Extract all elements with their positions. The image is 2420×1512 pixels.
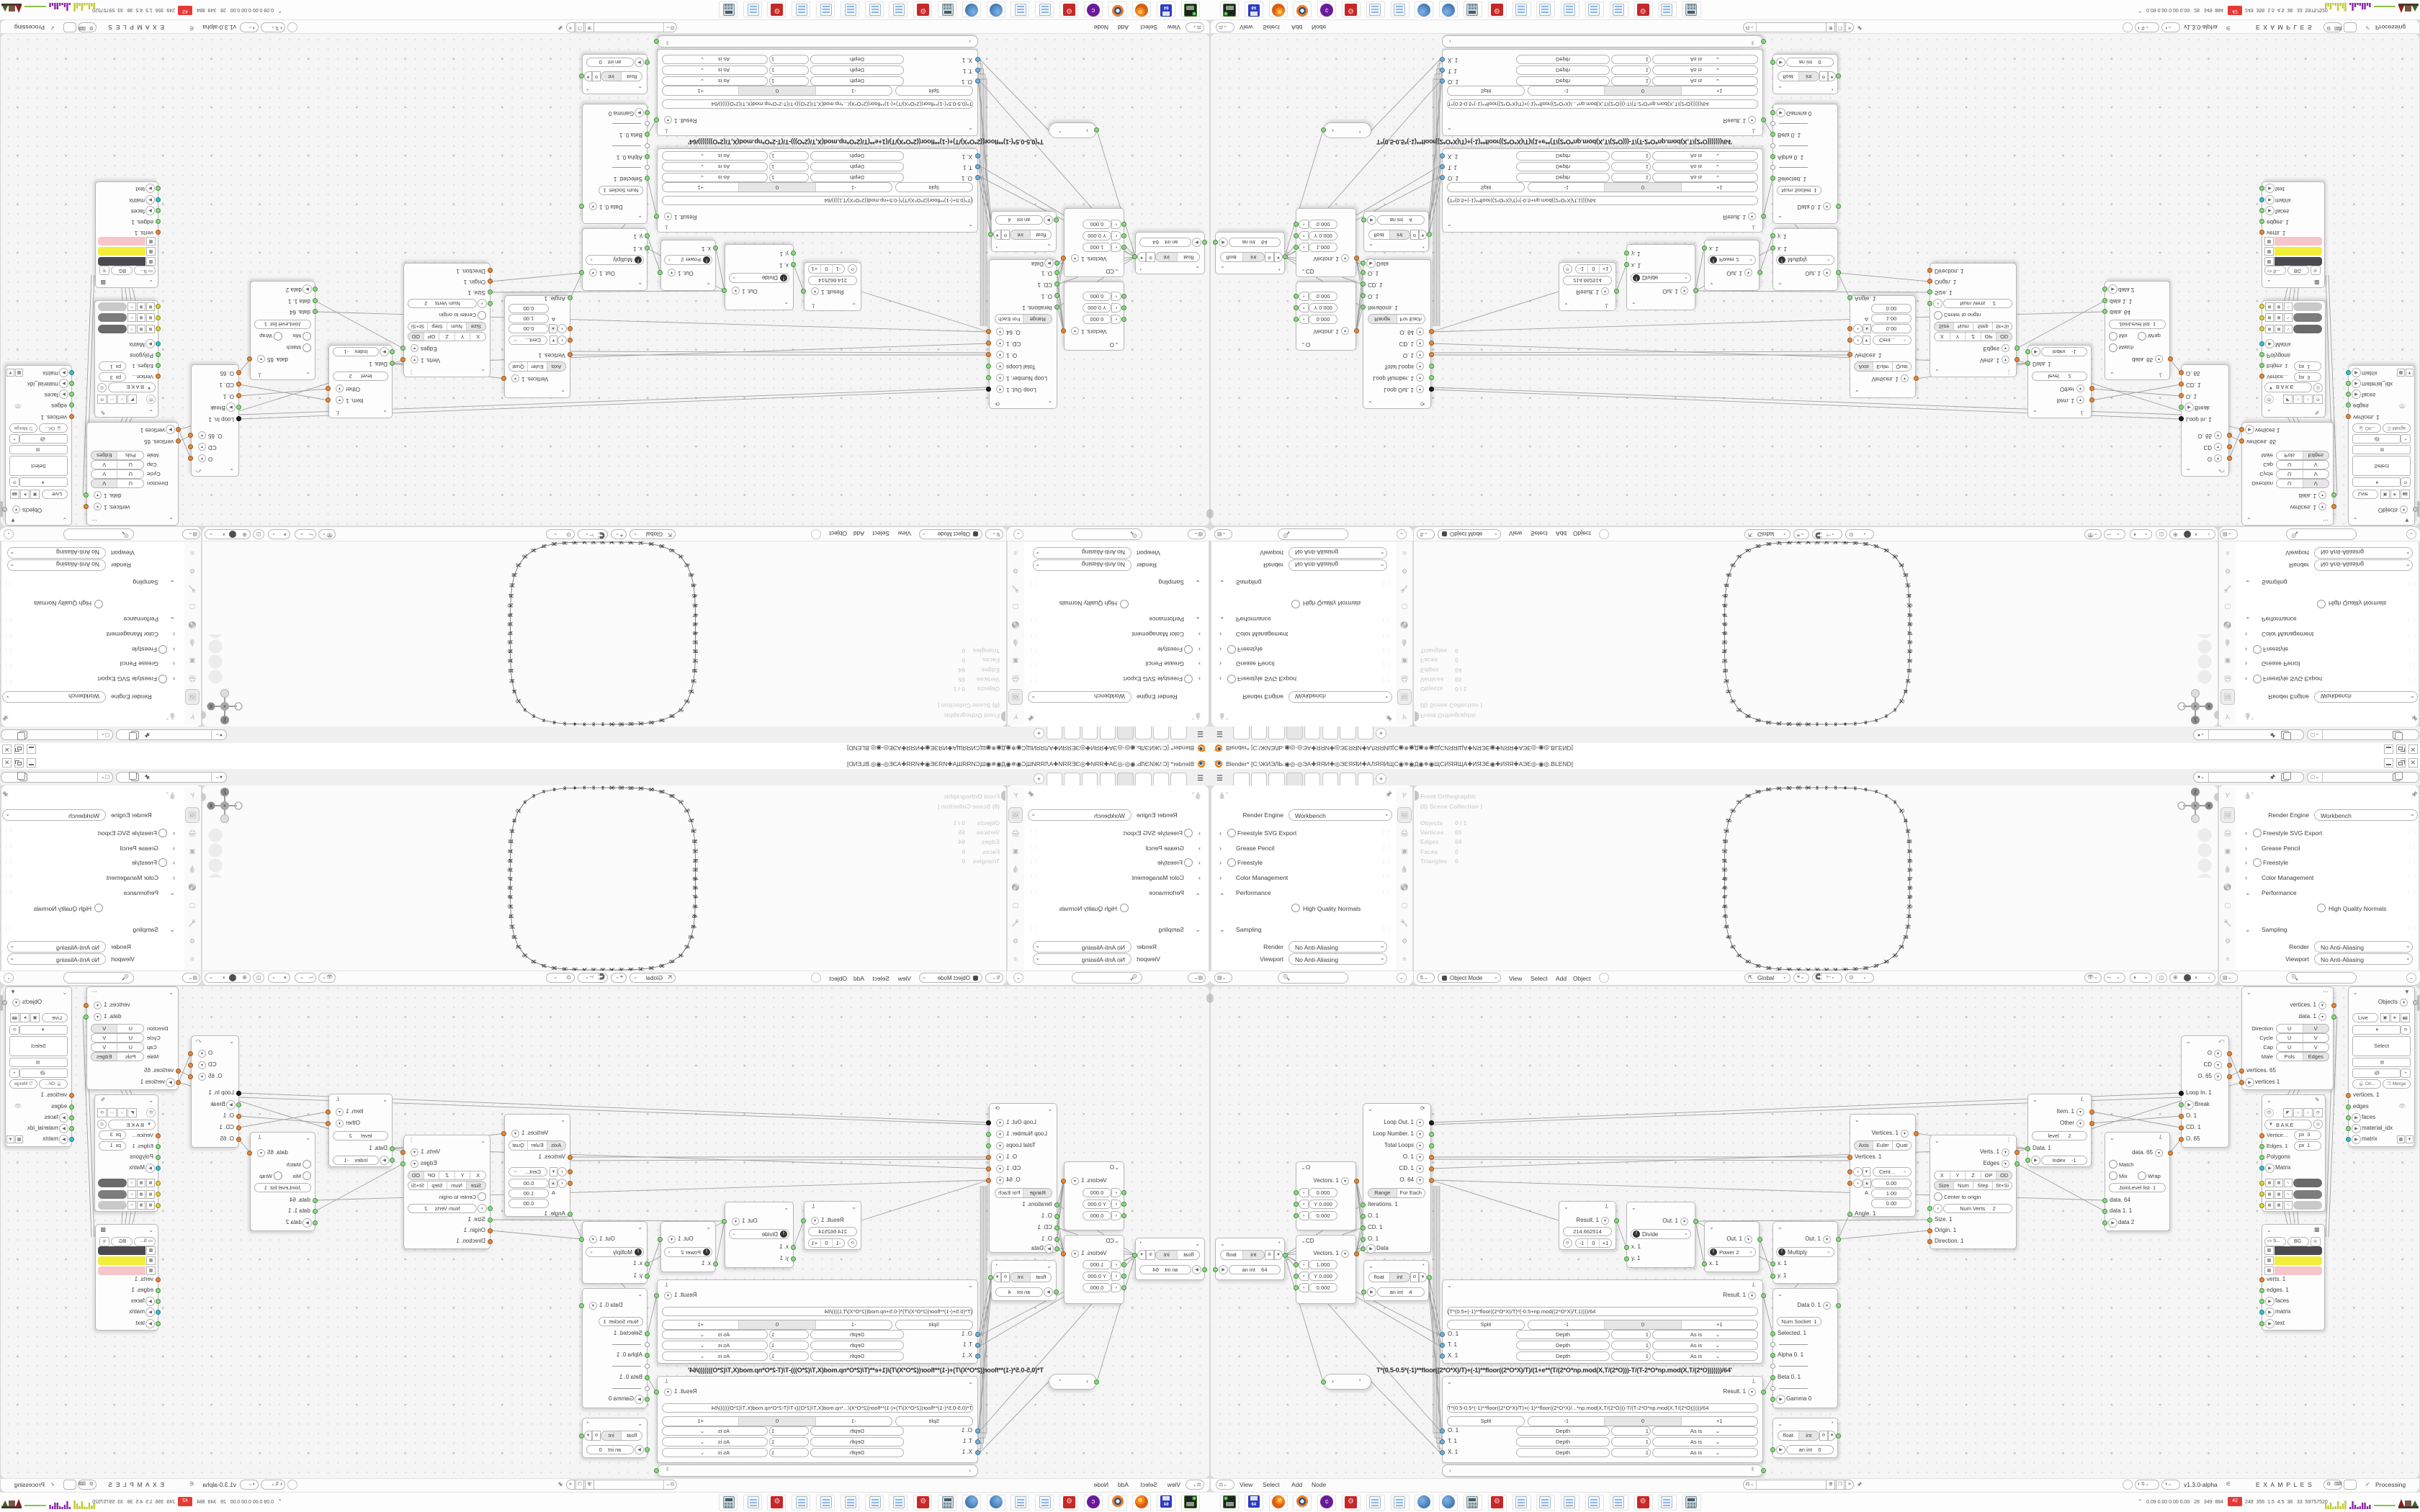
svg-text:29: 29 (1852, 541, 1858, 544)
svg-text:28: 28 (1863, 541, 1869, 546)
svg-text:58: 58 (669, 713, 675, 718)
svg-text:2: 2 (592, 786, 595, 791)
svg-text:21: 21 (1906, 593, 1912, 598)
svg-text:40: 40 (669, 547, 675, 552)
svg-text:15: 15 (1907, 859, 1913, 864)
svg-text:53: 53 (692, 667, 698, 672)
svg-text:59: 59 (659, 717, 665, 722)
svg-text:36: 36 (628, 541, 634, 544)
svg-text:22: 22 (509, 582, 515, 588)
svg-text:52: 52 (692, 850, 698, 855)
svg-text:56: 56 (684, 809, 690, 814)
svg-text:62: 62 (1786, 786, 1792, 791)
svg-text:40: 40 (669, 960, 675, 965)
svg-text:2: 2 (1825, 721, 1828, 726)
svg-text:23: 23 (511, 572, 517, 577)
svg-text:58: 58 (1745, 713, 1751, 718)
svg-text:53: 53 (1723, 840, 1729, 845)
svg-text:51: 51 (1722, 859, 1728, 864)
svg-text:64: 64 (609, 786, 615, 791)
svg-text:44: 44 (691, 582, 696, 588)
svg-text:20: 20 (508, 603, 514, 608)
svg-text:61: 61 (638, 786, 644, 791)
svg-text:50: 50 (693, 868, 699, 873)
svg-text:61: 61 (638, 721, 644, 726)
svg-text:26: 26 (1883, 960, 1889, 965)
svg-text:58: 58 (669, 794, 675, 799)
svg-text:49: 49 (693, 877, 699, 882)
svg-text:44: 44 (1724, 582, 1729, 588)
svg-text:3: 3 (583, 721, 586, 726)
svg-text:10: 10 (1899, 809, 1904, 814)
svg-text:46: 46 (692, 603, 698, 608)
svg-text:3: 3 (1834, 786, 1837, 791)
svg-text:31: 31 (581, 541, 587, 544)
svg-text:19: 19 (1907, 895, 1913, 900)
svg-text:42: 42 (684, 945, 690, 950)
svg-text:1: 1 (601, 786, 604, 791)
svg-text:64: 64 (1805, 721, 1811, 726)
svg-text:24: 24 (516, 562, 521, 567)
svg-text:17: 17 (1907, 877, 1913, 882)
svg-text:30: 30 (1842, 541, 1848, 544)
svg-text:62: 62 (628, 786, 634, 791)
svg-text:44: 44 (691, 924, 696, 930)
svg-text:9: 9 (1894, 706, 1896, 711)
svg-text:51: 51 (692, 648, 698, 653)
svg-text:52: 52 (1722, 657, 1728, 662)
svg-text:43: 43 (689, 572, 694, 577)
svg-text:8: 8 (532, 794, 535, 799)
svg-text:7: 7 (1875, 717, 1878, 722)
svg-text:39: 39 (659, 964, 665, 969)
svg-text:21: 21 (1906, 914, 1912, 919)
svg-text:60: 60 (648, 788, 654, 793)
svg-text:31: 31 (1833, 541, 1839, 544)
svg-text:56: 56 (1730, 698, 1736, 703)
svg-text:51: 51 (692, 859, 698, 864)
svg-text:47: 47 (692, 612, 698, 617)
svg-text:48: 48 (693, 621, 699, 626)
svg-text:24: 24 (1899, 945, 1904, 950)
svg-text:10: 10 (516, 698, 521, 703)
svg-text:59: 59 (1755, 717, 1761, 722)
svg-text:52: 52 (692, 657, 698, 662)
svg-text:40: 40 (1745, 960, 1751, 965)
svg-text:20: 20 (1906, 603, 1912, 608)
svg-text:53: 53 (692, 840, 698, 845)
svg-text:45: 45 (1723, 593, 1729, 598)
svg-text:48: 48 (1722, 621, 1728, 626)
svg-text:17: 17 (508, 630, 514, 635)
svg-text:60: 60 (648, 719, 654, 724)
svg-text:3: 3 (583, 786, 586, 791)
svg-text:50: 50 (1722, 868, 1728, 873)
svg-text:32: 32 (1824, 541, 1829, 544)
svg-text:54: 54 (1724, 829, 1729, 834)
svg-text:8: 8 (532, 713, 535, 718)
svg-text:41: 41 (1736, 554, 1742, 559)
svg-text:17: 17 (1907, 630, 1913, 635)
svg-text:5: 5 (563, 786, 566, 791)
svg-text:55: 55 (1726, 819, 1731, 824)
svg-text:18: 18 (1907, 886, 1913, 891)
svg-text:9: 9 (1894, 801, 1896, 806)
svg-text:37: 37 (1776, 541, 1782, 544)
svg-text:38: 38 (648, 541, 654, 546)
svg-text:12: 12 (509, 678, 515, 683)
svg-text:45: 45 (692, 593, 698, 598)
svg-text:47: 47 (1722, 612, 1728, 617)
svg-text:7: 7 (1875, 790, 1878, 795)
svg-text:25: 25 (1892, 554, 1898, 559)
svg-text:27: 27 (1873, 543, 1879, 548)
svg-text:14: 14 (1906, 657, 1912, 662)
svg-text:13: 13 (508, 840, 514, 845)
svg-text:47: 47 (692, 895, 698, 900)
svg-text:6: 6 (553, 788, 556, 793)
svg-text:27: 27 (1873, 964, 1879, 969)
svg-text:46: 46 (1722, 904, 1728, 909)
svg-text:63: 63 (619, 721, 624, 726)
svg-text:44: 44 (1724, 924, 1729, 930)
svg-text:55: 55 (1726, 688, 1731, 693)
svg-text:23: 23 (1903, 572, 1909, 577)
svg-text:29: 29 (562, 541, 568, 544)
svg-text:36: 36 (1786, 541, 1792, 544)
svg-text:6: 6 (1864, 788, 1867, 793)
svg-text:11: 11 (511, 819, 516, 824)
svg-text:16: 16 (1907, 868, 1913, 873)
svg-text:62: 62 (628, 721, 634, 726)
svg-text:60: 60 (1766, 788, 1772, 793)
svg-text:1: 1 (601, 721, 604, 726)
svg-text:27: 27 (541, 964, 547, 969)
svg-text:13: 13 (508, 667, 514, 672)
svg-text:12: 12 (509, 829, 515, 834)
svg-text:22: 22 (509, 924, 515, 930)
svg-text:30: 30 (572, 541, 578, 544)
svg-text:15: 15 (508, 859, 514, 864)
svg-text:4: 4 (573, 721, 576, 726)
svg-text:45: 45 (692, 914, 698, 919)
svg-text:21: 21 (508, 914, 514, 919)
svg-text:14: 14 (508, 657, 514, 662)
svg-text:59: 59 (1755, 790, 1761, 795)
svg-text:64: 64 (1805, 786, 1811, 791)
svg-text:2: 2 (592, 721, 595, 726)
svg-text:18: 18 (508, 886, 514, 891)
svg-text:34: 34 (609, 541, 615, 544)
svg-text:11: 11 (1903, 688, 1908, 693)
svg-text:5: 5 (1854, 721, 1857, 726)
svg-text:19: 19 (1907, 612, 1913, 617)
svg-text:45: 45 (1723, 914, 1729, 919)
svg-text:48: 48 (693, 886, 699, 891)
svg-text:50: 50 (1722, 639, 1728, 644)
svg-text:13: 13 (1906, 667, 1912, 672)
svg-text:24: 24 (516, 945, 521, 950)
svg-text:42: 42 (684, 562, 690, 567)
svg-text:25: 25 (1892, 953, 1898, 958)
svg-text:63: 63 (619, 786, 624, 791)
svg-text:48: 48 (1722, 886, 1728, 891)
svg-text:11: 11 (511, 688, 516, 693)
svg-text:4: 4 (573, 786, 576, 791)
svg-text:41: 41 (678, 554, 684, 559)
svg-text:41: 41 (1736, 953, 1742, 958)
svg-text:61: 61 (1776, 721, 1782, 726)
svg-text:5: 5 (1854, 786, 1857, 791)
svg-text:46: 46 (692, 904, 698, 909)
svg-text:43: 43 (689, 935, 694, 940)
svg-text:22: 22 (1905, 582, 1911, 588)
svg-text:57: 57 (678, 801, 684, 806)
svg-text:58: 58 (1745, 794, 1751, 799)
svg-text:23: 23 (511, 935, 517, 940)
svg-text:42: 42 (1730, 945, 1736, 950)
svg-text:63: 63 (1796, 786, 1802, 791)
svg-text:18: 18 (508, 621, 514, 626)
svg-text:55: 55 (689, 688, 694, 693)
svg-text:52: 52 (1722, 850, 1728, 855)
svg-text:10: 10 (1899, 698, 1904, 703)
svg-text:63: 63 (1796, 721, 1802, 726)
svg-text:1: 1 (1816, 786, 1819, 791)
svg-text:39: 39 (1755, 964, 1761, 969)
svg-text:7: 7 (542, 790, 545, 795)
svg-text:55: 55 (689, 819, 694, 824)
svg-text:54: 54 (691, 678, 696, 683)
svg-text:43: 43 (1726, 572, 1731, 577)
svg-text:51: 51 (1722, 648, 1728, 653)
svg-text:10: 10 (516, 809, 521, 814)
svg-text:61: 61 (1776, 786, 1782, 791)
svg-text:59: 59 (659, 790, 665, 795)
svg-text:32: 32 (591, 541, 596, 544)
svg-text:19: 19 (508, 612, 514, 617)
svg-text:57: 57 (1736, 801, 1742, 806)
svg-text:43: 43 (1726, 935, 1731, 940)
svg-text:42: 42 (1730, 562, 1736, 567)
svg-text:5: 5 (563, 721, 566, 726)
svg-text:4: 4 (1844, 786, 1847, 791)
svg-text:3: 3 (1834, 721, 1837, 726)
svg-text:7: 7 (542, 717, 545, 722)
svg-text:53: 53 (1723, 667, 1729, 672)
svg-text:14: 14 (1906, 850, 1912, 855)
svg-text:16: 16 (508, 868, 514, 873)
svg-text:14: 14 (508, 850, 514, 855)
svg-text:2: 2 (1825, 786, 1828, 791)
svg-text:6: 6 (553, 719, 556, 724)
svg-text:25: 25 (522, 953, 528, 958)
svg-text:15: 15 (1907, 648, 1913, 653)
svg-text:54: 54 (1724, 678, 1729, 683)
svg-text:8: 8 (1885, 794, 1888, 799)
svg-text:4: 4 (1844, 721, 1847, 726)
svg-text:49: 49 (1722, 877, 1728, 882)
svg-text:9: 9 (524, 706, 526, 711)
svg-text:8: 8 (1885, 713, 1888, 718)
svg-text:1: 1 (1816, 721, 1819, 726)
svg-text:37: 37 (638, 541, 644, 544)
svg-text:20: 20 (1906, 904, 1912, 909)
svg-text:26: 26 (1883, 547, 1889, 552)
svg-text:21: 21 (508, 593, 514, 598)
svg-text:56: 56 (1730, 809, 1736, 814)
svg-text:49: 49 (1722, 630, 1728, 635)
svg-text:47: 47 (1722, 895, 1728, 900)
svg-text:12: 12 (1905, 829, 1911, 834)
svg-text:26: 26 (531, 547, 537, 552)
svg-text:50: 50 (693, 639, 699, 644)
svg-text:12: 12 (1905, 678, 1911, 683)
svg-text:54: 54 (691, 829, 696, 834)
svg-text:40: 40 (1745, 547, 1751, 552)
svg-text:49: 49 (693, 630, 699, 635)
svg-text:35: 35 (1796, 541, 1802, 544)
svg-text:13: 13 (1906, 840, 1912, 845)
svg-text:22: 22 (1905, 924, 1911, 930)
svg-text:20: 20 (508, 904, 514, 909)
svg-text:28: 28 (552, 541, 557, 546)
svg-text:60: 60 (1766, 719, 1772, 724)
svg-text:38: 38 (1766, 541, 1772, 546)
svg-text:6: 6 (1864, 719, 1867, 724)
svg-text:17: 17 (508, 877, 514, 882)
svg-text:41: 41 (678, 953, 684, 958)
svg-text:27: 27 (541, 543, 547, 548)
svg-text:26: 26 (531, 960, 537, 965)
svg-text:39: 39 (659, 543, 665, 548)
svg-text:19: 19 (508, 895, 514, 900)
svg-text:39: 39 (1755, 543, 1761, 548)
svg-text:11: 11 (1903, 819, 1908, 824)
svg-text:57: 57 (678, 706, 684, 711)
svg-text:56: 56 (684, 698, 690, 703)
svg-text:35: 35 (619, 541, 624, 544)
svg-text:16: 16 (508, 639, 514, 644)
svg-text:9: 9 (524, 801, 526, 806)
svg-text:25: 25 (522, 554, 528, 559)
svg-text:33: 33 (600, 541, 606, 544)
svg-text:57: 57 (1736, 706, 1742, 711)
svg-text:62: 62 (1786, 721, 1792, 726)
svg-text:18: 18 (1907, 621, 1913, 626)
svg-text:34: 34 (1805, 541, 1811, 544)
svg-text:64: 64 (609, 721, 615, 726)
svg-text:15: 15 (508, 648, 514, 653)
svg-text:46: 46 (1722, 603, 1728, 608)
svg-text:16: 16 (1907, 639, 1913, 644)
svg-text:33: 33 (1814, 541, 1820, 544)
svg-text:24: 24 (1899, 562, 1904, 567)
svg-text:23: 23 (1903, 935, 1909, 940)
